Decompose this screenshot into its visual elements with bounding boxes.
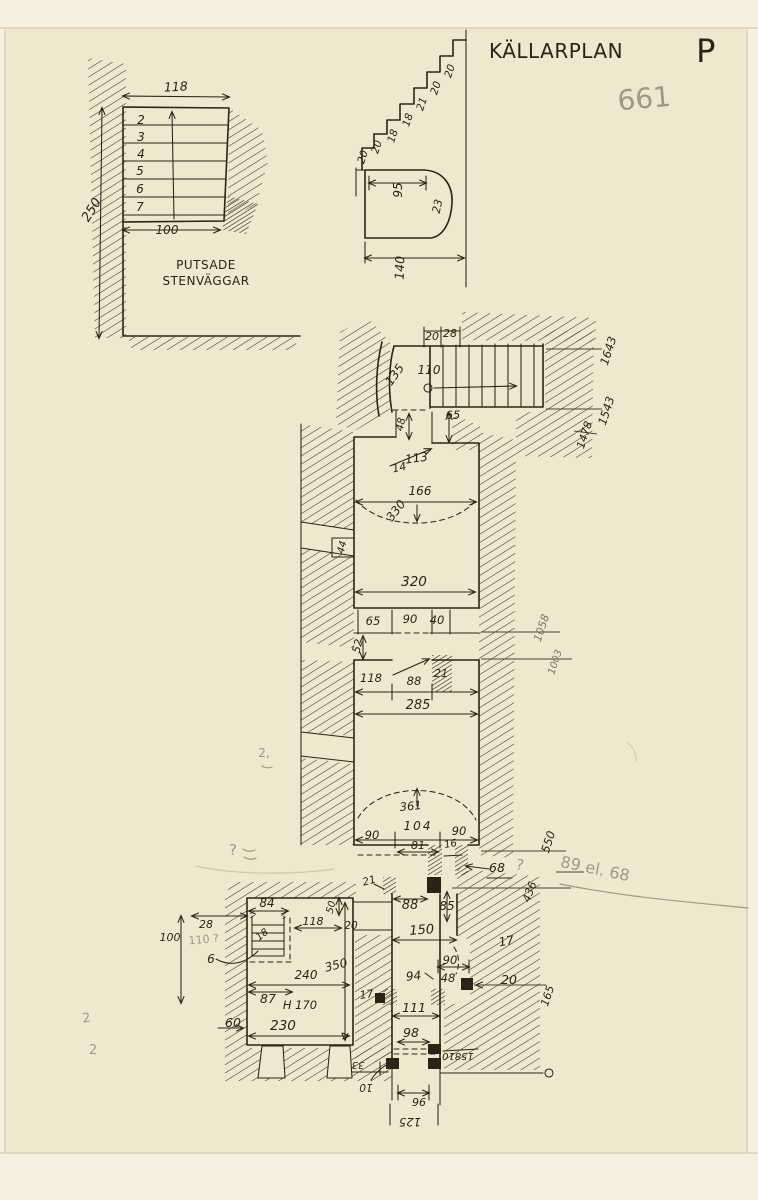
note-line-2: STENVÄGGAR: [162, 273, 249, 288]
dim: 20: [425, 330, 439, 343]
dim: 87: [260, 991, 276, 1006]
dim: 68: [489, 860, 505, 875]
step-number: 3: [137, 130, 145, 144]
dim: 20: [344, 920, 358, 932]
dim-height: H 170: [283, 998, 317, 1012]
dim: 17: [498, 933, 516, 950]
dim: 118: [303, 915, 324, 928]
dim: 285: [406, 698, 431, 713]
arch-width: 95: [391, 182, 405, 197]
drawing-title: KÄLLARPLAN: [489, 39, 623, 63]
dim-width-top: 118: [163, 78, 188, 94]
dim: 84: [259, 896, 274, 910]
dim: 88: [402, 898, 419, 913]
dim: 65: [446, 408, 461, 422]
cellar-plan-drawing: KÄLLARPLANP661118234567250100PUTSADESTEN…: [0, 0, 758, 1200]
dim: 111: [402, 1000, 426, 1015]
dim-upside-down: 96: [412, 1095, 426, 1108]
pencil-mark: 2: [89, 1043, 97, 1058]
dim: 110: [418, 363, 441, 377]
dim: 320: [401, 574, 427, 590]
total-width: 140: [392, 256, 408, 280]
dim-width-bottom: 100: [156, 223, 179, 237]
dim: 90: [443, 953, 458, 967]
step-number: 4: [137, 147, 145, 161]
dim: 28: [443, 327, 457, 340]
dim: 166: [409, 484, 432, 498]
dim: 40: [430, 613, 445, 627]
dim: 90: [403, 612, 418, 626]
dim-upside-down: 125: [399, 1115, 421, 1129]
scanned-drawing-page: KÄLLARPLANP661118234567250100PUTSADESTEN…: [0, 0, 758, 1200]
note-line-1: PUTSADE: [176, 258, 236, 272]
dim-vault: 361: [399, 798, 422, 814]
drawing-title-plan-letter: P: [696, 32, 716, 70]
dim: 85: [439, 899, 454, 913]
dim: 90: [365, 828, 380, 842]
pencil-note: 110 ?: [188, 932, 220, 948]
dim: 100: [160, 931, 181, 944]
dim: 94: [405, 968, 422, 984]
pencil-question-mark: ?: [229, 841, 237, 859]
dim: 230: [270, 1018, 296, 1034]
dim: 104: [404, 819, 433, 833]
dim-upside-down: 15810: [442, 1050, 474, 1061]
dim-upside-down: 33: [352, 1059, 365, 1070]
dim: 20: [501, 972, 517, 987]
dim: 17: [359, 987, 375, 1002]
dim: 6: [207, 952, 215, 966]
archive-number-pencil: 661: [616, 80, 672, 118]
pencil-mark: 2,: [258, 746, 269, 760]
step-number: 2: [137, 113, 145, 127]
step-number: 7: [136, 200, 144, 214]
dim: 60: [225, 1015, 241, 1030]
dim: 48: [441, 971, 456, 985]
dim: 88: [407, 674, 422, 688]
dim: 28: [199, 918, 213, 931]
step-number: 5: [136, 164, 144, 178]
dim: 118: [360, 671, 382, 685]
dim: 90: [452, 824, 467, 838]
dim: 98: [403, 1025, 419, 1040]
dim: 240: [295, 968, 318, 982]
dim: 65: [366, 614, 381, 628]
dim: 16: [443, 838, 457, 851]
step-number: 6: [136, 182, 144, 196]
dim: 21: [434, 667, 448, 680]
dim: 81: [411, 839, 425, 852]
dim: 150: [409, 922, 435, 939]
dim-upside-down: 10: [359, 1081, 373, 1093]
